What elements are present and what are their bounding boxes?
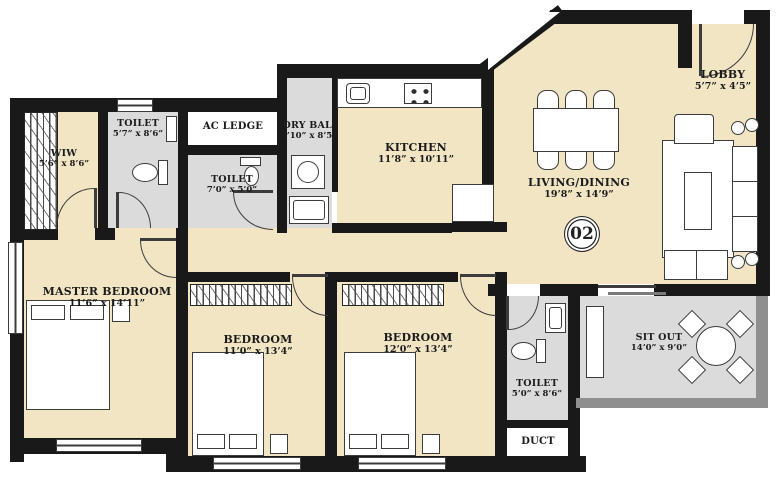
window-bedroom1: [213, 457, 301, 470]
room-dims: 3’10” x 8’5”: [281, 131, 337, 141]
kitchen-sink-icon: [346, 83, 370, 104]
room-name: MASTER BEDROOM: [43, 285, 172, 298]
unit-number-badge: 02: [564, 216, 600, 252]
wall-living-south-3: [654, 284, 756, 296]
window-master-left: [8, 242, 23, 334]
side-table-lamp-icon: [745, 252, 759, 266]
loveseat-cushion-line: [696, 251, 697, 279]
wc-icon: [132, 163, 158, 182]
sofa-icon: [732, 146, 758, 252]
armchair-icon: [674, 114, 714, 144]
room-dims: 11’0” x 13’4”: [223, 346, 292, 357]
room-dims: 5’6” x 8’6”: [39, 159, 89, 169]
sofa-cushion-line: [733, 216, 757, 217]
dining-table-icon: [533, 108, 619, 152]
room-name: KITCHEN: [385, 141, 447, 154]
wc-tank: [158, 160, 168, 185]
room-label-bedroom-1: BEDROOM 11’0” x 13’4”: [196, 330, 320, 360]
utility-sink-icon: [289, 196, 329, 224]
room-name: WIW: [51, 148, 77, 159]
wall-lobby-left: [678, 10, 692, 68]
side-table-lamp-icon: [745, 118, 759, 132]
window-toilet-top: [117, 99, 153, 112]
room-label-toilet-mid: TOILET 7’0” x 5’0”: [186, 170, 278, 198]
bedroom1-wardrobe-icon: [190, 284, 292, 306]
wall-toilet-duct: [495, 420, 568, 428]
room-label-living-dining: LIVING/DINING 19’8” x 14’9”: [508, 172, 650, 204]
hob-icon: [404, 83, 432, 104]
room-name: DRY BAL.: [283, 120, 336, 131]
room-name: LIVING/DINING: [528, 176, 630, 189]
washing-machine-icon: [291, 155, 325, 189]
pillow: [229, 434, 257, 449]
room-name: SIT OUT: [636, 332, 683, 343]
room-label-dry-balcony: DRY BAL. 3’10” x 8’5”: [280, 116, 338, 144]
room-name: AC LEDGE: [203, 121, 263, 132]
side-table-lamp-icon: [731, 121, 745, 135]
room-dims: 12’0” x 13’4”: [383, 344, 452, 355]
planter: [586, 306, 604, 378]
wiw-door-leaf: [94, 188, 97, 228]
room-label-kitchen: KITCHEN 11’8” x 10’11”: [350, 138, 482, 168]
room-dims: 11’8” x 10’11”: [378, 154, 454, 165]
kitchen-cabinet: [452, 184, 494, 222]
sitout-railing-bottom: [576, 398, 768, 408]
room-dims: 14’0” x 9’0”: [631, 343, 687, 353]
wall-kitchen-south: [332, 223, 452, 233]
room-label-ac-ledge: AC LEDGE: [190, 118, 276, 134]
room-dims: 19’8” x 14’9”: [544, 189, 613, 200]
room-name: TOILET: [211, 174, 253, 185]
room-dims: 7’0” x 5’0”: [207, 185, 257, 195]
room-label-master-bedroom: MASTER BEDROOM 11’6” x 14’11”: [38, 282, 176, 312]
room-name: LOBBY: [701, 68, 746, 81]
room-label-lobby: LOBBY 5’7” x 4’5”: [686, 64, 760, 96]
wall-top: [550, 10, 692, 24]
unit-number: 02: [570, 224, 594, 244]
pillow: [197, 434, 225, 449]
wc-tank: [536, 339, 546, 363]
room-label-sit-out: SIT OUT 14’0” x 9’0”: [618, 328, 700, 356]
room-name: TOILET: [117, 118, 159, 129]
sitout-railing-right: [756, 296, 768, 404]
room-label-wiw: WIW 5’6” x 8’6”: [28, 144, 100, 172]
wall-living-south-2: [540, 284, 598, 296]
pillow: [349, 434, 377, 449]
bedroom2-wardrobe-icon: [342, 284, 444, 306]
bedside-table: [270, 434, 288, 454]
sofa-cushion-line: [733, 181, 757, 182]
room-name: DUCT: [521, 436, 555, 447]
room-name: BEDROOM: [223, 333, 292, 346]
wc-icon: [511, 342, 536, 360]
window-master-bottom: [56, 439, 142, 452]
pillow: [381, 434, 409, 449]
room-label-toilet-top: TOILET 5’7” x 8’6”: [102, 114, 174, 142]
room-label-toilet-bottom: TOILET 5’0” x 8’6”: [502, 374, 572, 402]
wall-corridor-north-2: [95, 228, 115, 240]
room-dims: 5’0” x 8’6”: [512, 389, 562, 399]
patio-table-icon: [696, 326, 736, 366]
side-table-lamp-icon: [731, 255, 745, 269]
sitout-slider-leaf-2: [608, 292, 666, 295]
room-dims: 11’6” x 14’11”: [69, 298, 145, 309]
wall-passage: [452, 222, 507, 232]
wall-bottom-step: [166, 438, 180, 458]
floor-plan: LOBBY 5’7” x 4’5” LIVING/DINING 19’8” x …: [0, 0, 780, 490]
room-label-duct: DUCT: [510, 432, 566, 450]
wall-outer-right: [756, 10, 770, 296]
wall-kitchen-living: [482, 64, 494, 186]
room-name: TOILET: [516, 378, 558, 389]
room-dims: 5’7” x 4’5”: [695, 81, 751, 92]
coffee-table-icon: [684, 172, 712, 230]
wall-bedroom1-top: [188, 272, 290, 282]
washbasin-icon: [545, 303, 566, 333]
bedside-table: [422, 434, 440, 454]
sitout-slider-leaf-1: [598, 285, 656, 288]
wall-kitchen-top: [277, 64, 494, 78]
wall-below-acledge: [188, 145, 287, 155]
room-dims: 5’7” x 8’6”: [113, 129, 163, 139]
wall-bedroom2-top: [328, 272, 458, 282]
wc-tank: [240, 157, 261, 166]
window-bedroom2: [358, 457, 446, 470]
room-label-bedroom-2: BEDROOM 12’0” x 13’4”: [352, 328, 484, 358]
room-name: BEDROOM: [383, 331, 452, 344]
wall-master-bedroom1: [176, 228, 188, 458]
